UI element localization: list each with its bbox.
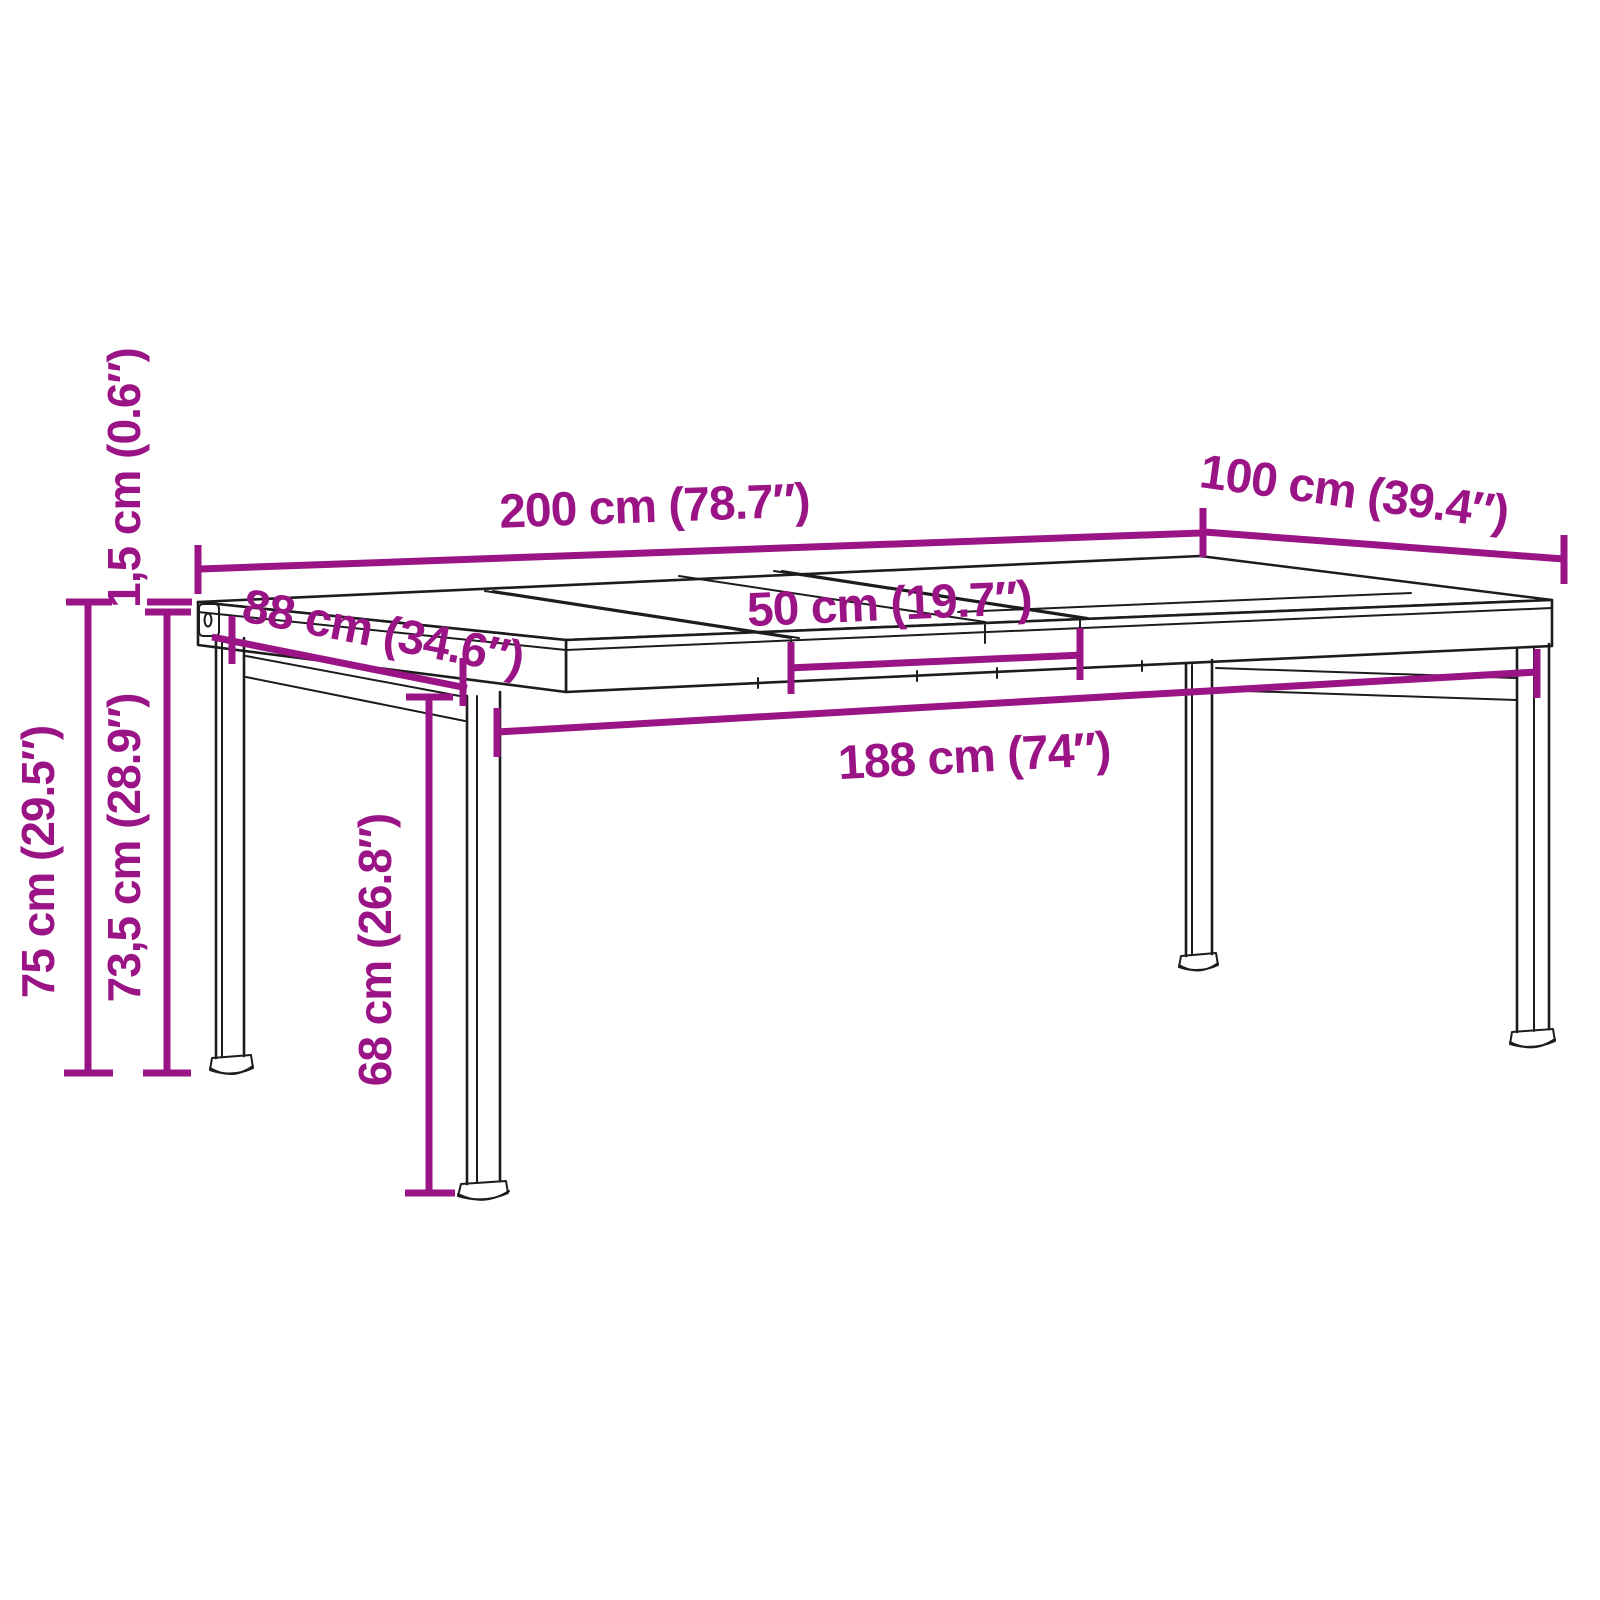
leg-back-left-edges	[216, 638, 244, 1058]
dimension-top-thickness: 1,5 cm (0.6″)	[98, 348, 192, 608]
dimension-top-thickness-label: 1,5 cm (0.6″)	[98, 348, 150, 608]
dimension-leg-height-label: 68 cm (26.8″)	[349, 814, 401, 1086]
leg-back-right-foot	[1179, 953, 1218, 971]
dimension-total-height-label: 75 cm (29.5″)	[12, 726, 64, 998]
dimension-height-under-top: 73,5 cm (28.9″)	[98, 612, 191, 1073]
dimension-top-depth-label: 100 cm (39.4″)	[1197, 445, 1512, 540]
dimension-diagram: 200 cm (78.7″) 100 cm (39.4″) 88 cm (34.…	[0, 0, 1600, 1600]
dimension-top-depth-line	[1204, 532, 1564, 559]
leg-back-right-edges	[1186, 660, 1212, 956]
leg-front-left-edges	[467, 692, 500, 1184]
dimension-leg-height: 68 cm (26.8″)	[349, 697, 455, 1193]
leg-front-right-foot	[1510, 1029, 1555, 1047]
dimension-leg-span-length-label: 188 cm (74″)	[837, 723, 1112, 790]
leg-front-left-foot	[458, 1181, 509, 1200]
leg-back-left	[210, 638, 253, 1074]
leg-back-right	[1179, 660, 1218, 971]
leg-front-left	[458, 692, 509, 1200]
leg-back-left-foot	[210, 1055, 253, 1074]
dimension-top-length-label: 200 cm (78.7″)	[498, 474, 810, 538]
diagram-svg: 200 cm (78.7″) 100 cm (39.4″) 88 cm (34.…	[0, 0, 1600, 1600]
leg-front-right	[1510, 644, 1555, 1047]
dimension-height-under-top-label: 73,5 cm (28.9″)	[98, 694, 150, 1003]
